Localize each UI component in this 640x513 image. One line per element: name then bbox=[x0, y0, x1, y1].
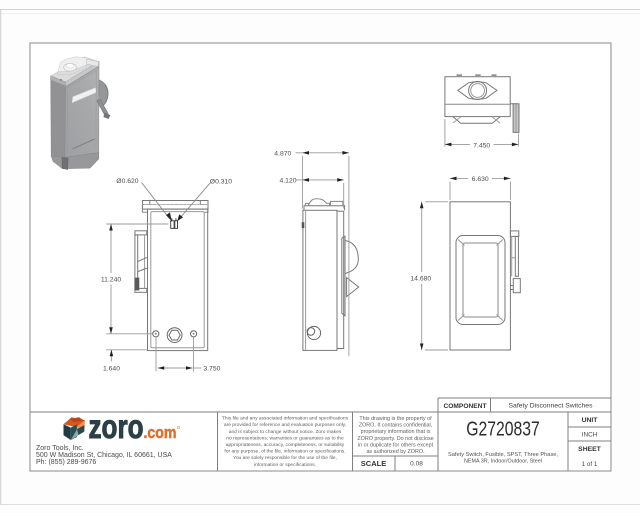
svg-text:as authorized by ZORO.: as authorized by ZORO. bbox=[366, 449, 424, 455]
svg-text:in or duplicate for others exc: in or duplicate for others except bbox=[358, 442, 434, 448]
svg-text:4.120: 4.120 bbox=[280, 177, 297, 184]
svg-text:SHEET: SHEET bbox=[578, 446, 602, 453]
svg-text:1.640: 1.640 bbox=[103, 366, 120, 373]
svg-text:INCH: INCH bbox=[582, 432, 598, 439]
svg-text:ZORO. It contains confidential: ZORO. It contains confidential, bbox=[359, 423, 433, 429]
svg-text:This file and any associated i: This file and any associated information… bbox=[222, 416, 349, 422]
svg-text:NEMA 3R, Indoor/Outdoor, Steel: NEMA 3R, Indoor/Outdoor, Steel bbox=[464, 458, 542, 464]
svg-text:ZORO property. Do not disclose: ZORO property. Do not disclose bbox=[357, 436, 433, 442]
svg-text:G2720837: G2720837 bbox=[466, 418, 540, 440]
svg-text:500 W Madison St, Chicago, IL: 500 W Madison St, Chicago, IL 60661, USA bbox=[36, 452, 172, 459]
svg-text:information or specifications.: information or specifications. bbox=[254, 462, 316, 468]
svg-text:You are solely responsible for: You are solely responsible for the use o… bbox=[233, 455, 337, 461]
svg-text:3.750: 3.750 bbox=[203, 366, 220, 373]
svg-text:COMPONENT: COMPONENT bbox=[444, 403, 488, 410]
svg-text:and is subject to change witho: and is subject to change without notice.… bbox=[229, 429, 342, 435]
svg-text:11.240: 11.240 bbox=[101, 277, 122, 284]
svg-text:are provided for reference and: are provided for reference and evaluatio… bbox=[224, 422, 346, 428]
svg-text:no representations, warranties: no representations, warranties or guaran… bbox=[226, 435, 344, 441]
svg-text:Zoro Tools, Inc.: Zoro Tools, Inc. bbox=[36, 445, 84, 452]
svg-text:1 of 1: 1 of 1 bbox=[582, 461, 598, 468]
svg-text:.com: .com bbox=[144, 424, 177, 442]
svg-text:Ph: (855) 289-9676: Ph: (855) 289-9676 bbox=[36, 459, 96, 466]
svg-text:4.870: 4.870 bbox=[274, 150, 291, 157]
svg-text:This drawing is the property o: This drawing is the property of bbox=[359, 416, 432, 422]
svg-text:Ø0.620: Ø0.620 bbox=[116, 178, 139, 185]
svg-text:appropriateness, accuracy, com: appropriateness, accuracy, completeness,… bbox=[226, 442, 345, 448]
svg-text:for any purpose, of the file,: for any purpose, of the file, informatio… bbox=[224, 449, 345, 455]
svg-text:14.680: 14.680 bbox=[410, 276, 431, 283]
svg-text:7.450: 7.450 bbox=[473, 142, 490, 149]
svg-text:Safety Switch, Fusible, SPST,: Safety Switch, Fusible, SPST, Three Phas… bbox=[448, 452, 558, 458]
svg-text:Safety Disconnect Switches: Safety Disconnect Switches bbox=[509, 403, 594, 410]
svg-text:UNIT: UNIT bbox=[582, 417, 599, 424]
svg-text:zoro: zoro bbox=[89, 408, 144, 445]
svg-text:6.630: 6.630 bbox=[472, 176, 489, 183]
svg-text:0.08: 0.08 bbox=[410, 461, 423, 468]
svg-text:SCALE: SCALE bbox=[361, 459, 386, 468]
svg-text:Ø0.310: Ø0.310 bbox=[210, 178, 233, 185]
svg-text:proprietary information that i: proprietary information that is bbox=[361, 429, 431, 435]
